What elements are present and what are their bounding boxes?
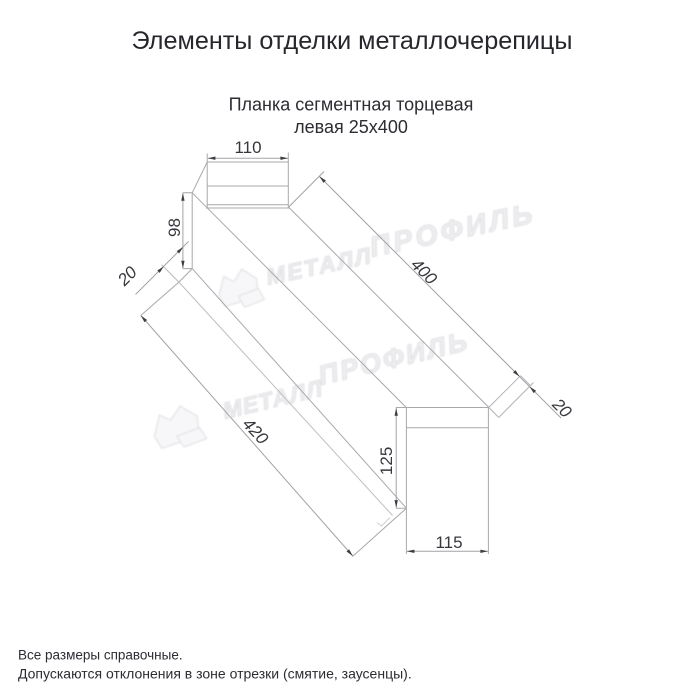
svg-text:115: 115	[435, 533, 462, 552]
svg-text:Элементы отделки металлочерепи: Элементы отделки металлочерепицы	[132, 27, 573, 55]
svg-text:МЕТАЛЛ: МЕТАЛЛ	[264, 242, 375, 290]
svg-text:Допускаются отклонения в зоне: Допускаются отклонения в зоне отрезки (с…	[18, 666, 412, 682]
svg-text:20: 20	[548, 394, 576, 422]
svg-text:МЕТАЛЛ: МЕТАЛЛ	[220, 375, 326, 424]
svg-text:Планка сегментная торцевая: Планка сегментная торцевая	[229, 95, 474, 115]
svg-text:20: 20	[113, 262, 141, 290]
svg-text:400: 400	[407, 255, 441, 289]
svg-text:ПРОФИЛЬ: ПРОФИЛЬ	[315, 326, 472, 391]
svg-text:110: 110	[234, 138, 261, 157]
svg-text:левая 25х400: левая 25х400	[294, 117, 408, 137]
svg-text:Все размеры справочные.: Все размеры справочные.	[18, 648, 183, 663]
svg-text:98: 98	[165, 218, 184, 237]
svg-text:125: 125	[377, 447, 396, 475]
svg-text:ПРОФИЛЬ: ПРОФИЛЬ	[367, 197, 539, 263]
